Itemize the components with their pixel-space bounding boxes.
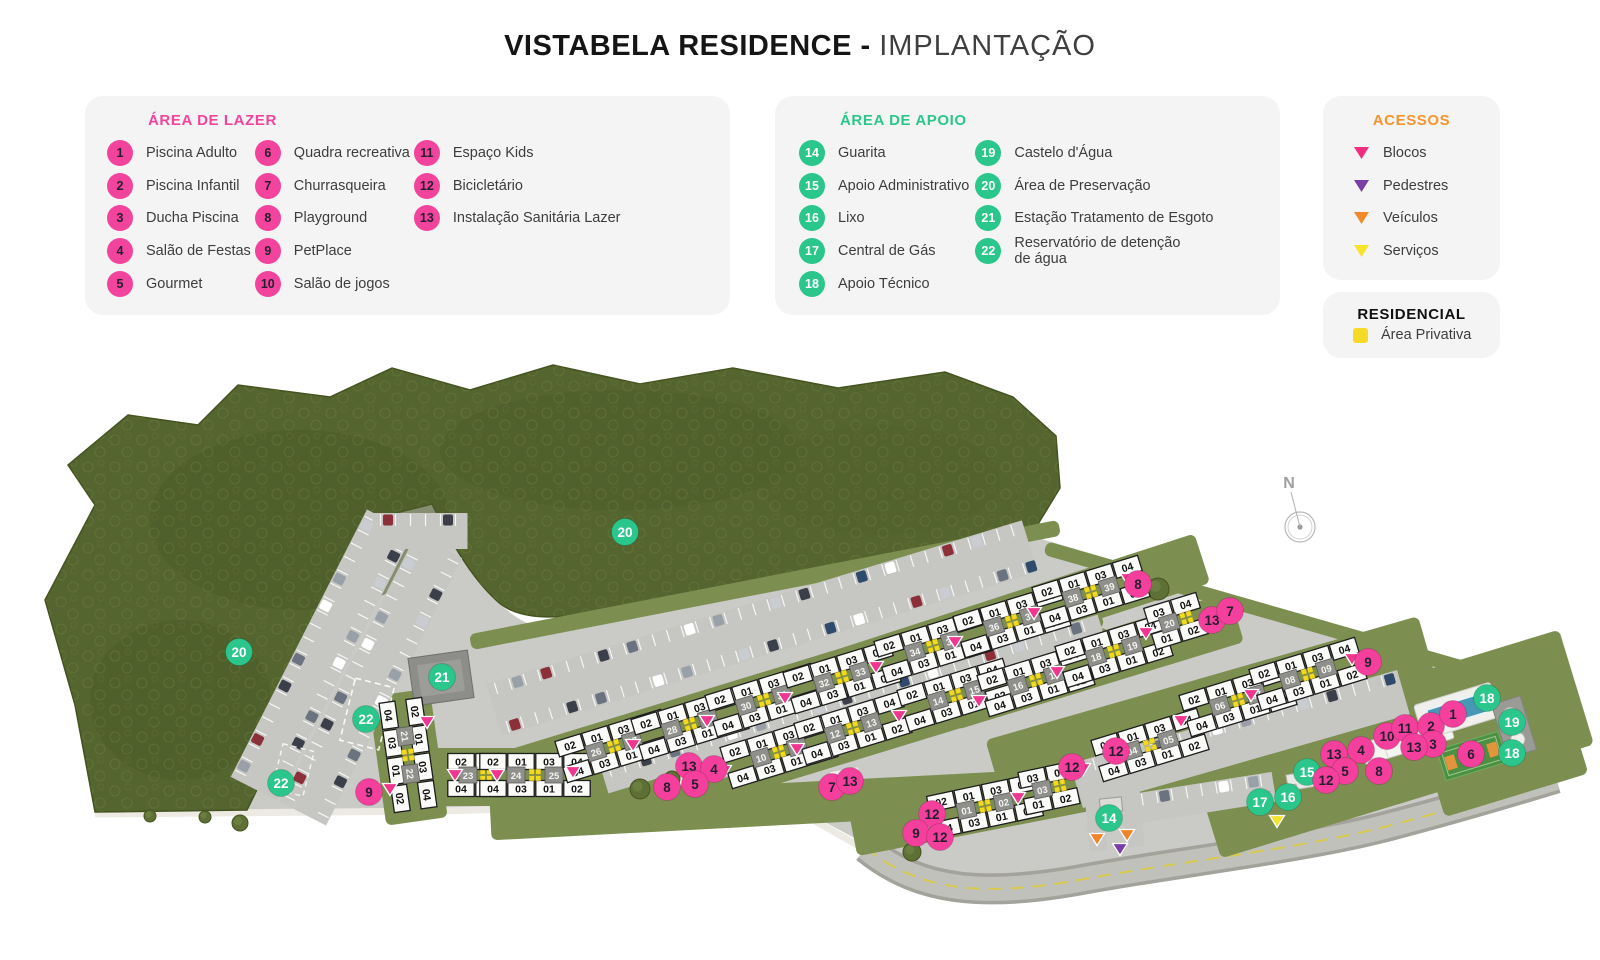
map-marker-number: 19 <box>1504 715 1519 730</box>
legend-item-17: 17Central de Gás <box>799 235 969 268</box>
legend-item-21: 21Estação Tratamento de Esgoto <box>975 202 1213 235</box>
legend-number-badge: 12 <box>414 173 440 199</box>
legend-residencial-item: Área Privativa <box>1323 327 1500 343</box>
map-marker-12: 12 <box>1313 767 1340 794</box>
unit-number: 02 <box>571 784 583 796</box>
map-marker-number: 12 <box>924 807 939 822</box>
legend-number-badge: 1 <box>107 140 133 166</box>
legend-item-18: 18Apoio Técnico <box>799 267 969 300</box>
map-marker-number: 5 <box>1341 764 1349 779</box>
map-marker-number: 13 <box>842 774 858 789</box>
map-marker-number: 12 <box>932 830 947 845</box>
legend-number-badge: 20 <box>975 173 1001 199</box>
map-marker-number: 22 <box>273 776 288 791</box>
map-marker-number: 9 <box>912 826 920 841</box>
legend-number-badge: 18 <box>799 271 825 297</box>
map-marker-9: 9 <box>1355 649 1382 676</box>
map-marker-9: 9 <box>903 820 930 847</box>
legend-item-label: Piscina Adulto <box>146 145 237 161</box>
legend-item-16: 16Lixo <box>799 202 969 235</box>
legend-item-6: 6Quadra recreativa <box>255 137 410 170</box>
unit-number: 01 <box>543 784 555 796</box>
private-area-icon <box>985 799 991 805</box>
legend-access-Pedestres: Pedestres <box>1353 170 1448 203</box>
private-area-icon <box>979 807 985 813</box>
block-number: 03 <box>1036 784 1049 797</box>
map-marker-number: 4 <box>1357 743 1365 758</box>
map-marker-number: 7 <box>1226 604 1234 619</box>
map-marker-number: 9 <box>365 785 373 800</box>
legend-number-badge: 15 <box>799 173 825 199</box>
legend-item-13: 13Instalação Sanitária Lazer <box>414 202 621 235</box>
legend-number-badge: 11 <box>414 140 440 166</box>
map-marker-12: 12 <box>927 824 954 851</box>
page-title-suffix: IMPLANTAÇÃO <box>879 30 1096 62</box>
map-marker-number: 18 <box>1504 746 1520 761</box>
map-marker-8: 8 <box>1366 758 1393 785</box>
legend-item-4: 4Salão de Festas <box>107 235 251 268</box>
map-marker-number: 20 <box>231 645 246 660</box>
legend-access-label: Blocos <box>1383 145 1427 161</box>
legend-item-5: 5Gourmet <box>107 267 251 300</box>
compass: N <box>1283 475 1315 542</box>
access-triangle-icon <box>1353 211 1370 225</box>
map-marker-number: 17 <box>1252 795 1267 810</box>
legend-access-label: Serviços <box>1383 243 1439 259</box>
map-marker-12: 12 <box>1103 738 1130 765</box>
map-marker-number: 12 <box>1064 760 1079 775</box>
map-marker-number: 8 <box>1375 764 1383 779</box>
legend-item-label: Bicicletário <box>453 178 523 194</box>
unit-number: 02 <box>487 757 499 769</box>
legend-item-label: Salão de jogos <box>294 276 390 292</box>
map-marker-number: 12 <box>1108 744 1123 759</box>
legend-number-badge: 17 <box>799 238 825 264</box>
legend-item-11: 11Espaço Kids <box>414 137 621 170</box>
map-marker-18: 18 <box>1499 740 1526 767</box>
map-marker-8: 8 <box>1125 571 1152 598</box>
legend-item-label: Ducha Piscina <box>146 210 239 226</box>
private-area-icon <box>536 769 541 774</box>
block-number: 23 <box>463 771 474 782</box>
legend-access-label: Veículos <box>1383 210 1438 226</box>
legend-number-badge: 3 <box>107 205 133 231</box>
unit-number: 01 <box>389 764 403 777</box>
unit-number: 04 <box>455 784 467 796</box>
map-marker-17: 17 <box>1247 789 1274 816</box>
legend-number-badge: 16 <box>799 205 825 231</box>
legend-item-20: 20Área de Preservação <box>975 170 1213 203</box>
legend-number-badge: 4 <box>107 238 133 264</box>
legend-item-label: Castelo d'Água <box>1014 145 1112 161</box>
legend-item-8: 8Playground <box>255 202 410 235</box>
map-marker-16: 16 <box>1275 784 1302 811</box>
map-marker-12: 12 <box>1059 754 1086 781</box>
legend-item-7: 7Churrasqueira <box>255 170 410 203</box>
access-triangle-icon <box>1353 179 1370 193</box>
unit-number: 03 <box>515 784 527 796</box>
unit-number: 04 <box>487 784 499 796</box>
private-area-icon <box>1053 780 1059 786</box>
legend-item-label: Espaço Kids <box>453 145 534 161</box>
legend-number-badge: 19 <box>975 140 1001 166</box>
legend-number-badge: 22 <box>975 238 1001 264</box>
unit-number: 02 <box>393 792 407 805</box>
map-marker-7: 7 <box>1217 598 1244 625</box>
legend-number-badge: 5 <box>107 271 133 297</box>
unit-number: 04 <box>419 788 433 801</box>
block-number: 24 <box>511 771 522 782</box>
map-marker-number: 13 <box>1406 740 1422 755</box>
legend-access-Serviços: Serviços <box>1353 235 1448 268</box>
legend-item-label: Área de Preservação <box>1014 178 1150 194</box>
map-marker-1: 1 <box>1440 701 1467 728</box>
legend-residencial-header: RESIDENCIAL <box>1323 306 1500 323</box>
map-marker-22: 22 <box>353 706 380 733</box>
legend-number-badge: 8 <box>255 205 281 231</box>
access-triangle-icon <box>1353 146 1370 160</box>
legend-item-label: Apoio Administrativo <box>838 178 969 194</box>
page-title: VISTABELA RESIDENCE - IMPLANTAÇÃO <box>0 30 1600 63</box>
map-marker-number: 4 <box>710 762 718 777</box>
legend-item-label: Gourmet <box>146 276 202 292</box>
legend-item-label: Churrasqueira <box>294 178 386 194</box>
map-marker-number: 6 <box>1467 747 1475 762</box>
legend-item-2: 2Piscina Infantil <box>107 170 251 203</box>
map-marker-number: 14 <box>1101 811 1117 826</box>
legend-acessos-header: ACESSOS <box>1323 112 1500 129</box>
map-marker-number: 3 <box>1429 737 1437 752</box>
private-area-icon <box>1061 785 1067 791</box>
private-area-icon <box>536 776 541 781</box>
legend-item-1: 1Piscina Adulto <box>107 137 251 170</box>
legend-apoio-header: ÁREA DE APOIO <box>840 112 1280 129</box>
private-area-icon <box>529 769 534 774</box>
private-area-icon <box>401 749 407 755</box>
legend-number-badge: 13 <box>414 205 440 231</box>
map-marker-19: 19 <box>1499 709 1526 736</box>
block-number: 25 <box>549 771 560 782</box>
legend-lazer-header: ÁREA DE LAZER <box>148 112 730 129</box>
private-area-icon <box>1059 779 1065 785</box>
legend-item-label: Quadra recreativa <box>294 145 410 161</box>
map-marker-20: 20 <box>612 519 639 546</box>
page-title-main: VISTABELA RESIDENCE - <box>504 30 871 62</box>
legend-item-label: Salão de Festas <box>146 243 251 259</box>
map-marker-number: 7 <box>828 780 836 795</box>
legend-panel-acessos: ACESSOS BlocosPedestresVeículosServiços <box>1323 96 1500 280</box>
legend-item-9: 9PetPlace <box>255 235 410 268</box>
map-marker-number: 12 <box>1318 773 1333 788</box>
legend-item-label: Piscina Infantil <box>146 178 240 194</box>
legend-item-10: 10Salão de jogos <box>255 267 410 300</box>
legend-item-label: Central de Gás <box>838 243 936 259</box>
legend-item-label: Instalação Sanitária Lazer <box>453 210 621 226</box>
legend-access-Blocos: Blocos <box>1353 137 1448 170</box>
private-area-icon <box>408 748 414 754</box>
legend-number-badge: 2 <box>107 173 133 199</box>
map-marker-14: 14 <box>1096 805 1123 832</box>
private-area-icon <box>978 800 984 806</box>
map-marker-number: 8 <box>663 780 671 795</box>
legend-apoio-items: 14Guarita15Apoio Administrativo16Lixo17C… <box>775 137 1280 300</box>
legend-item-label: Guarita <box>838 145 886 161</box>
map-marker-13: 13 <box>837 768 864 795</box>
map-marker-21: 21 <box>429 664 456 691</box>
map-marker-number: 5 <box>691 777 699 792</box>
map-marker-number: 20 <box>617 525 632 540</box>
map-marker-13: 13 <box>1401 734 1428 761</box>
map-marker-8: 8 <box>654 774 681 801</box>
legend-item-15: 15Apoio Administrativo <box>799 170 969 203</box>
legend-number-badge: 10 <box>255 271 281 297</box>
legend-item-label: Estação Tratamento de Esgoto <box>1014 210 1213 226</box>
private-area-label: Área Privativa <box>1381 327 1471 343</box>
legend-number-badge: 9 <box>255 238 281 264</box>
map-marker-5: 5 <box>682 771 709 798</box>
private-area-icon <box>1054 787 1060 793</box>
map-marker-18: 18 <box>1474 685 1501 712</box>
map-marker-number: 16 <box>1280 790 1296 805</box>
unit-number: 04 <box>381 709 395 722</box>
private-area-icon <box>409 755 415 761</box>
legend-item-19: 19Castelo d'Água <box>975 137 1213 170</box>
access-triangle-icon <box>1353 244 1370 258</box>
private-area-icon <box>986 806 992 812</box>
block-number: 02 <box>998 797 1011 810</box>
unit-number: 03 <box>385 737 399 750</box>
map-marker-number: 22 <box>358 712 373 727</box>
legend-item-label: Reservatório de detenção de água <box>1014 235 1180 267</box>
legend-item-12: 12Bicicletário <box>414 170 621 203</box>
private-area-icon <box>402 756 408 762</box>
map-marker-number: 18 <box>1479 691 1495 706</box>
legend-item-22: 22Reservatório de detenção de água <box>975 235 1213 268</box>
legend-access-Veículos: Veículos <box>1353 202 1448 235</box>
legend-item-14: 14Guarita <box>799 137 969 170</box>
map-marker-22: 22 <box>268 770 295 797</box>
legend-item-label: PetPlace <box>294 243 352 259</box>
legend-item-3: 3Ducha Piscina <box>107 202 251 235</box>
legend-item-label: Lixo <box>838 210 865 226</box>
legend-item-label: Apoio Técnico <box>838 276 930 292</box>
legend-panel-apoio: ÁREA DE APOIO 14Guarita15Apoio Administr… <box>775 96 1280 315</box>
legend-panel-residencial: RESIDENCIAL Área Privativa <box>1323 292 1500 358</box>
legend-number-badge: 7 <box>255 173 281 199</box>
map-marker-number: 9 <box>1364 655 1372 670</box>
legend-acessos-items: BlocosPedestresVeículosServiços <box>1323 137 1500 267</box>
map-marker-6: 6 <box>1458 741 1485 768</box>
private-area-icon <box>529 776 534 781</box>
legend-number-badge: 6 <box>255 140 281 166</box>
legend-item-label: Playground <box>294 210 367 226</box>
private-area-swatch <box>1353 328 1368 343</box>
legend-number-badge: 21 <box>975 205 1001 231</box>
compass-north-label: N <box>1283 475 1295 492</box>
legend-lazer-items: 1Piscina Adulto2Piscina Infantil3Ducha P… <box>85 137 730 300</box>
map-marker-20: 20 <box>226 639 253 666</box>
page: { "title": {"bold": "VISTABELA RESIDENCE… <box>0 0 1600 960</box>
map-marker-number: 8 <box>1134 577 1142 592</box>
map-marker-number: 1 <box>1449 707 1457 722</box>
map-marker-9: 9 <box>356 779 383 806</box>
legend-number-badge: 14 <box>799 140 825 166</box>
block-number: 22 <box>403 768 415 780</box>
legend-access-label: Pedestres <box>1383 178 1448 194</box>
legend-panel-lazer: ÁREA DE LAZER 1Piscina Adulto2Piscina In… <box>85 96 730 315</box>
map-marker-number: 21 <box>434 670 450 685</box>
